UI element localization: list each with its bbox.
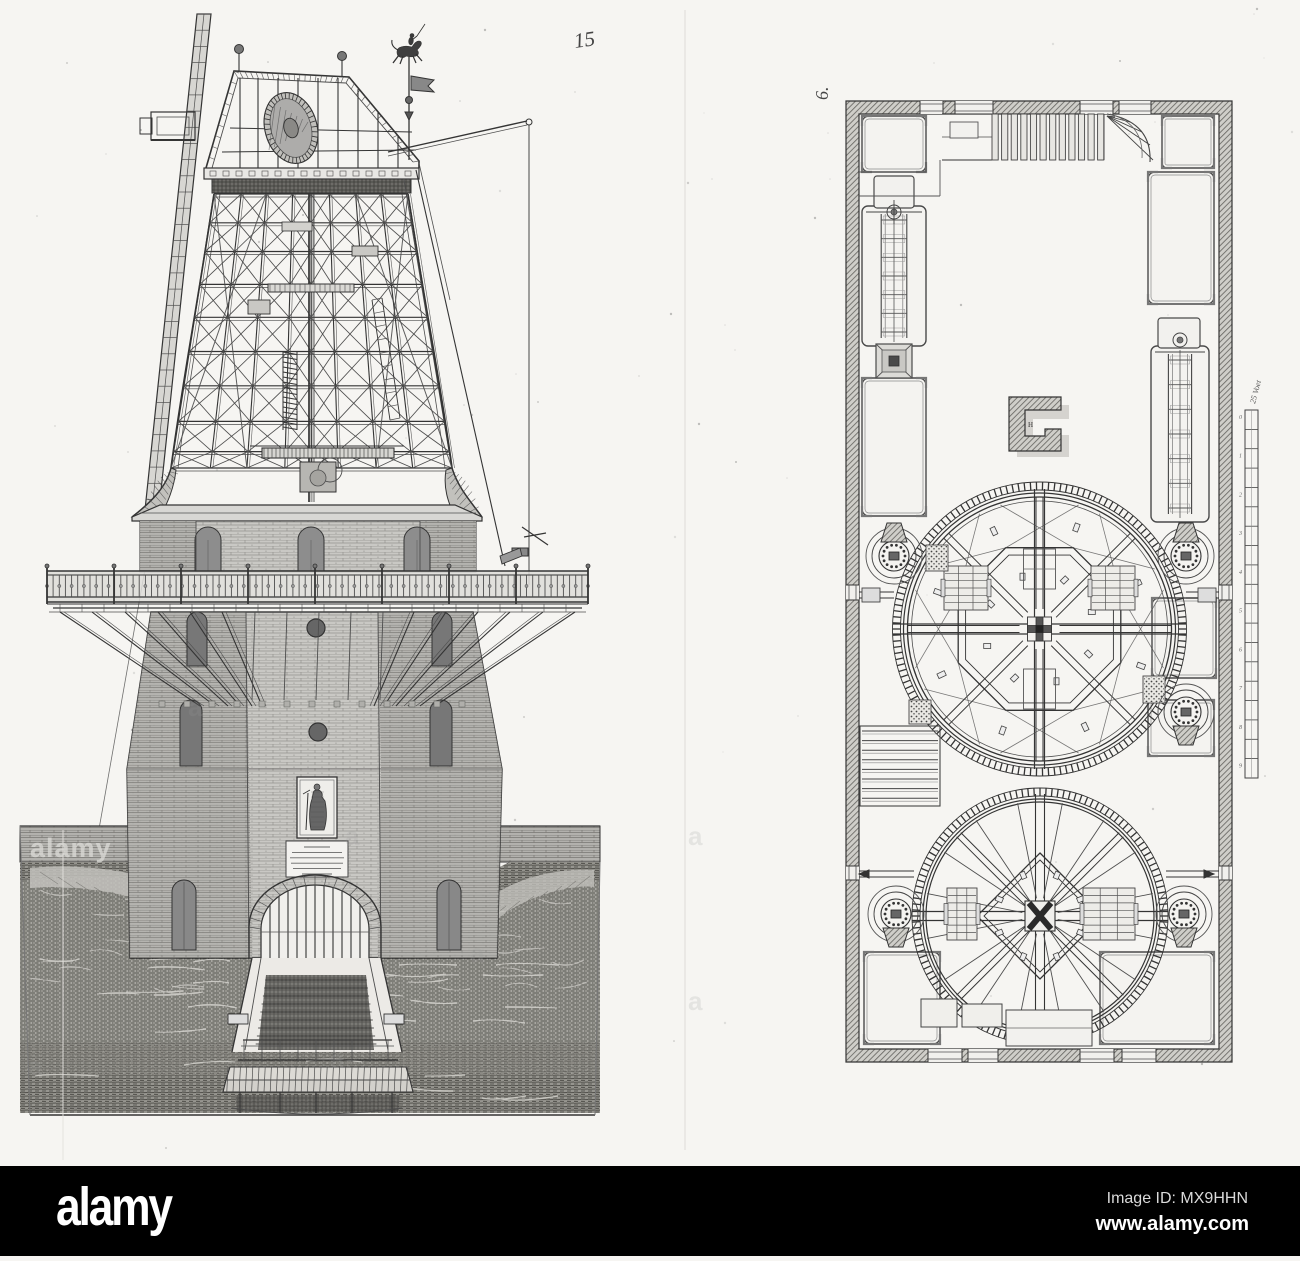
svg-text:6.: 6. [812, 87, 832, 101]
svg-text:5: 5 [1239, 609, 1242, 615]
svg-text:9: 9 [1239, 764, 1242, 770]
svg-text:6: 6 [1239, 647, 1242, 653]
svg-text:alamy: alamy [56, 1177, 174, 1237]
svg-text:a: a [188, 692, 203, 722]
svg-text:0: 0 [1239, 415, 1242, 421]
svg-text:a: a [470, 938, 485, 968]
svg-text:www.alamy.com: www.alamy.com [1095, 1213, 1249, 1235]
svg-text:8: 8 [1239, 725, 1242, 731]
svg-text:3: 3 [1238, 531, 1242, 537]
svg-text:H: H [1028, 421, 1033, 429]
svg-text:a: a [345, 821, 360, 851]
svg-text:Image ID: MX9HHN: Image ID: MX9HHN [1107, 1190, 1248, 1207]
svg-text:4: 4 [1239, 569, 1242, 576]
svg-text:alamy: alamy [30, 833, 112, 863]
svg-text:1: 1 [1239, 454, 1242, 460]
svg-text:a: a [28, 1051, 43, 1081]
svg-text:a: a [688, 821, 703, 851]
svg-text:a: a [688, 986, 703, 1016]
svg-text:a: a [330, 1044, 345, 1074]
svg-text:2: 2 [1239, 492, 1242, 498]
svg-text:15: 15 [572, 26, 596, 53]
